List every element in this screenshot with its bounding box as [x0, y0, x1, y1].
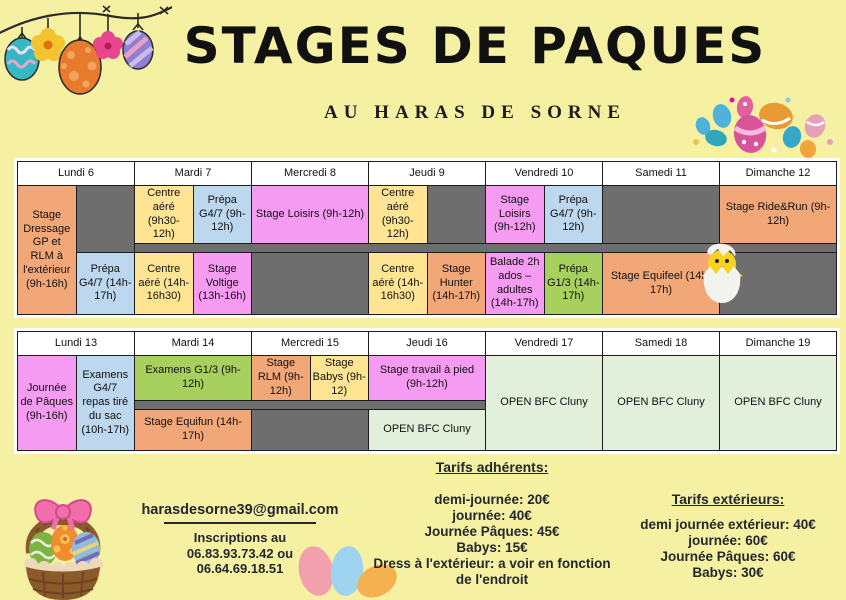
day-header: Dimanche 12 [720, 162, 837, 186]
tarif-item: Babys: 15€ [370, 540, 614, 556]
day-header: Dimanche 19 [720, 332, 837, 356]
cell-prepa-g13: Prépa G1/3 (14h-17h) [544, 253, 603, 315]
cell-centre-aere-am: Centre aéré (9h30-12h) [135, 186, 194, 244]
cell-stage-voltige: Stage Voltige (13h-16h) [193, 253, 252, 315]
day-header: Mercredi 15 [252, 332, 369, 356]
cell-prepa-g47-am: Prépa G4/7 (9h-12h) [544, 186, 603, 244]
cell-examens-g13: Examens G1/3 (9h-12h) [135, 356, 252, 401]
tarifs-adherents-block: Tarifs adhérents: demi-journée: 20€ jour… [370, 459, 614, 588]
day-header: Lundi 6 [18, 162, 135, 186]
hatching-chick-icon [699, 236, 746, 304]
easter-courses-poster: STAGES DE PAQUES AU HARAS DE SORNE Lundi… [0, 0, 846, 600]
day-header: Vendredi 17 [486, 332, 603, 356]
cell-empty [603, 186, 720, 244]
cell-open-bfc: OPEN BFC Cluny [603, 356, 720, 451]
day-header: Vendredi 10 [486, 162, 603, 186]
contact-email: harasdesorne39@gmail.com [125, 502, 355, 518]
hanging-eggs-garland-icon [0, 0, 172, 102]
cell-centre-aere-am: Centre aéré (9h30-12h) [369, 186, 428, 244]
cell-prepa-g47-am: Prépa G4/7 (9h-12h) [193, 186, 252, 244]
page-subtitle: AU HARAS DE SORNE [240, 102, 710, 124]
email-underline [164, 522, 316, 524]
cell-centre-aere-pm: Centre aéré (14h-16h30) [369, 253, 428, 315]
cell-travail-a-pied: Stage travail à pied (9h-12h) [369, 356, 486, 401]
tarifs-exterieurs-block: Tarifs extérieurs: demi journée extérieu… [612, 491, 844, 581]
cell-empty [76, 186, 135, 253]
page-title: STAGES DE PAQUES [175, 20, 775, 73]
cell-balade: Balade 2h ados – adultes (14h-17h) [486, 253, 545, 315]
tarif-item: Journée Pâques: 60€ [612, 549, 844, 565]
day-header: Jeudi 9 [369, 162, 486, 186]
cell-examens-g47: Examens G4/7 repas tiré du sac (10h-17h) [76, 356, 135, 451]
day-header: Samedi 18 [603, 332, 720, 356]
cell-prepa-g47-pm: Prépa G4/7 (14h-17h) [76, 253, 135, 315]
tarifs-adherents-heading: Tarifs adhérents: [370, 459, 614, 475]
day-header: Samedi 11 [603, 162, 720, 186]
cell-open-bfc: OPEN BFC Cluny [369, 410, 486, 451]
midday-separator [135, 401, 486, 410]
day-header: Mercredi 8 [252, 162, 369, 186]
cell-stage-loisirs: Stage Loisirs (9h-12h) [252, 186, 369, 244]
tarif-item: journée: 60€ [612, 533, 844, 549]
cell-stage-ride-run: Stage Ride&Run (9h-12h) [720, 186, 837, 244]
cell-open-bfc: OPEN BFC Cluny [720, 356, 837, 451]
day-header: Mardi 14 [135, 332, 252, 356]
cell-stage-rlm: Stage RLM (9h-12h) [252, 356, 311, 401]
cell-centre-aere-pm: Centre aéré (14h-16h30) [135, 253, 194, 315]
tarif-item: journée: 40€ [370, 508, 614, 524]
easter-eggs-cluster-icon [688, 90, 838, 162]
cell-empty [252, 253, 369, 315]
week2-schedule-table: Lundi 13 Mardi 14 Mercredi 15 Jeudi 16 V… [14, 328, 840, 454]
cell-stage-hunter: Stage Hunter (14h-17h) [427, 253, 486, 315]
day-header: Jeudi 16 [369, 332, 486, 356]
cell-empty [252, 410, 369, 451]
cell-journee-paques: Journée de Pâques (9h-16h) [18, 356, 77, 451]
tarif-item: Babys: 30€ [612, 565, 844, 581]
tarif-item: demi journée extérieur: 40€ [612, 517, 844, 533]
tarif-item: Journée Pâques: 45€ [370, 524, 614, 540]
cell-stage-loisirs: Stage Loisirs (9h-12h) [486, 186, 545, 244]
cell-stage-equifun: Stage Equifun (14h-17h) [135, 410, 252, 451]
cell-open-bfc: OPEN BFC Cluny [486, 356, 603, 451]
tarifs-exterieurs-heading: Tarifs extérieurs: [612, 491, 844, 507]
easter-basket-icon [13, 491, 113, 600]
tarif-item: Dress à l'extérieur: a voir en fonction … [370, 556, 614, 588]
day-header: Mardi 7 [135, 162, 252, 186]
day-header: Lundi 13 [18, 332, 135, 356]
cell-empty [427, 186, 486, 244]
cell-stage-dressage: Stage Dressage GP et RLM à l'extérieur (… [18, 186, 77, 315]
cell-stage-babys: Stage Babys (9h-12) [310, 356, 369, 401]
tarif-item: demi-journée: 20€ [370, 492, 614, 508]
